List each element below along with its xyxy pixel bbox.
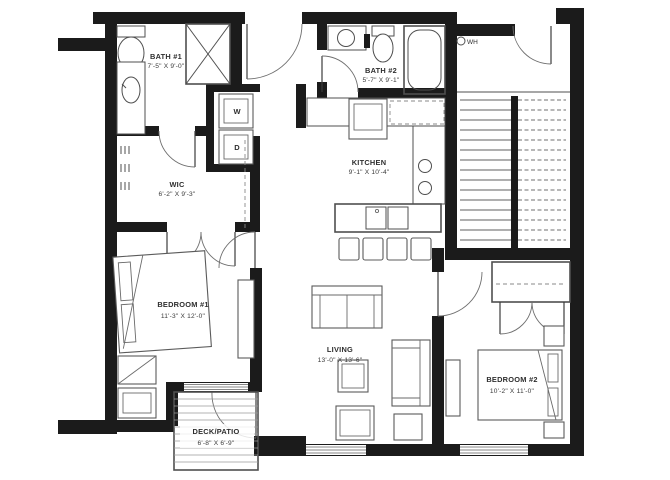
range-icon [349,99,387,139]
wic-label: WIC [169,180,185,189]
tv-stand [336,406,374,440]
laundry-closet [219,94,253,164]
kitchen-side-counter [413,126,445,204]
window-bedroom1-deck [184,383,248,391]
toilet-icon [372,26,394,62]
bath1-door [159,131,195,167]
bedroom2-label: BEDROOM #2 [486,375,537,384]
armchair [392,340,430,406]
water-heater-icon [457,37,465,45]
bath2-label: BATH #2 [365,66,397,75]
bedroom2-dims: 10'-2" X 11'-0" [490,388,535,395]
stair-treads [460,96,566,248]
kitchen-dims: 9'-1" X 10'-4" [349,169,390,176]
living-label: LIVING [327,345,353,354]
floor-plan: BATH #1 7'-5" X 9'-0" BATH #2 5'-7" X 9'… [0,0,670,480]
floor-plan-drawing: BATH #1 7'-5" X 9'-0" BATH #2 5'-7" X 9'… [0,0,670,480]
bath1-label: BATH #1 [150,52,182,61]
deck-label: DECK/PATIO [193,427,240,436]
bathtub-icon [404,26,445,94]
stairwell [457,37,570,248]
island-sink-icon [335,204,441,232]
bath2-dims: 5'-7" X 9'-1" [363,77,400,84]
shower-icon [186,24,230,84]
window-bedroom2-bottom [460,445,528,455]
kitchen [307,98,445,260]
bar-stools [339,238,431,260]
kitchen-label: KITCHEN [352,158,387,167]
bedroom1-door [219,232,255,268]
bedroom2-closet [492,262,570,302]
deck-dims: 6'-8" X 6'-9" [198,440,235,447]
stair-door [513,26,551,64]
water-heater-label: WH [467,39,478,46]
side-table [394,414,422,440]
washer-label: W [233,107,241,116]
bedroom2-door [438,272,482,316]
bath1-dims: 7'-5" X 9'-0" [148,63,185,70]
coffee-table [338,360,368,392]
sofa [312,286,382,328]
window-living-bottom [306,445,366,455]
living-dims: 13'-0" X 13'-6" [318,357,363,364]
vanity-sink-icon [117,62,145,134]
wic-dims: 6'-2" X 9'-3" [159,191,196,198]
bath2-door [322,56,358,92]
dryer-label: D [234,143,240,152]
vanity-sink-icon [328,26,370,50]
bedroom1-dims: 11'-3" X 12'-0" [161,313,206,320]
bedroom1-label: BEDROOM #1 [157,300,208,309]
entry-door [247,24,302,79]
